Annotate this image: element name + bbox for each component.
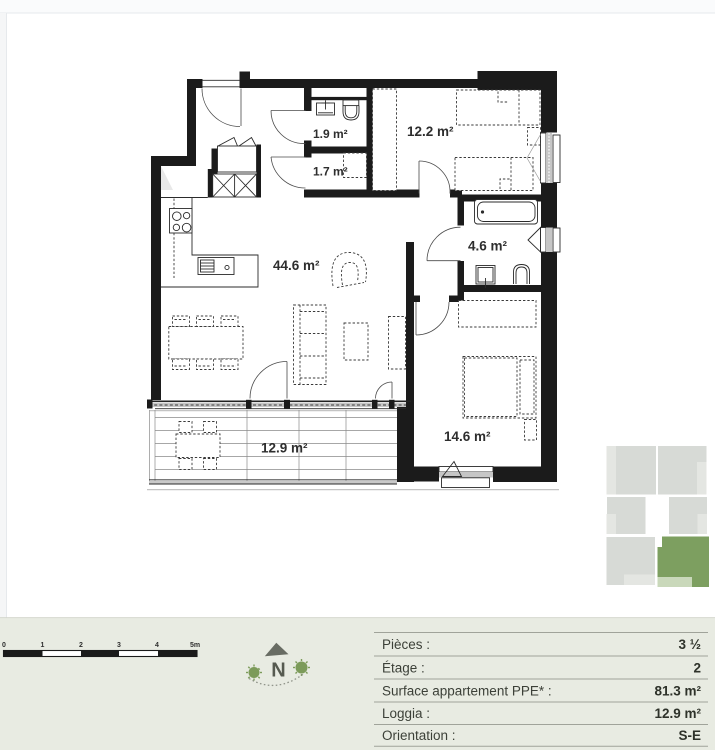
svg-text:N: N: [271, 660, 285, 682]
svg-text:81.3 m²: 81.3 m²: [654, 683, 701, 698]
svg-text:2: 2: [79, 642, 83, 649]
svg-text:2: 2: [693, 660, 701, 675]
svg-text:14.6 m²: 14.6 m²: [444, 429, 491, 444]
svg-text:12.9 m²: 12.9 m²: [654, 706, 701, 721]
svg-text:Pièces :: Pièces :: [382, 637, 430, 652]
svg-text:1.7 m²: 1.7 m²: [313, 165, 348, 179]
svg-text:1: 1: [41, 642, 45, 649]
svg-text:12.2 m²: 12.2 m²: [407, 124, 454, 139]
svg-text:4.6 m²: 4.6 m²: [468, 239, 508, 254]
svg-text:12.9 m²: 12.9 m²: [261, 441, 308, 456]
svg-text:5m: 5m: [190, 642, 200, 649]
svg-text:3: 3: [117, 642, 121, 649]
svg-text:Surface appartement PPE* :: Surface appartement PPE* :: [382, 683, 552, 698]
svg-text:44.6 m²: 44.6 m²: [273, 258, 320, 273]
svg-text:0: 0: [2, 642, 6, 649]
svg-text:Loggia :: Loggia :: [382, 706, 430, 721]
svg-text:Étage :: Étage :: [382, 660, 425, 675]
svg-text:S-E: S-E: [678, 728, 701, 743]
svg-text:3 ½: 3 ½: [678, 637, 701, 652]
svg-text:1.9 m²: 1.9 m²: [313, 127, 348, 141]
svg-text:Orientation :: Orientation :: [382, 728, 456, 743]
svg-text:4: 4: [155, 642, 159, 649]
